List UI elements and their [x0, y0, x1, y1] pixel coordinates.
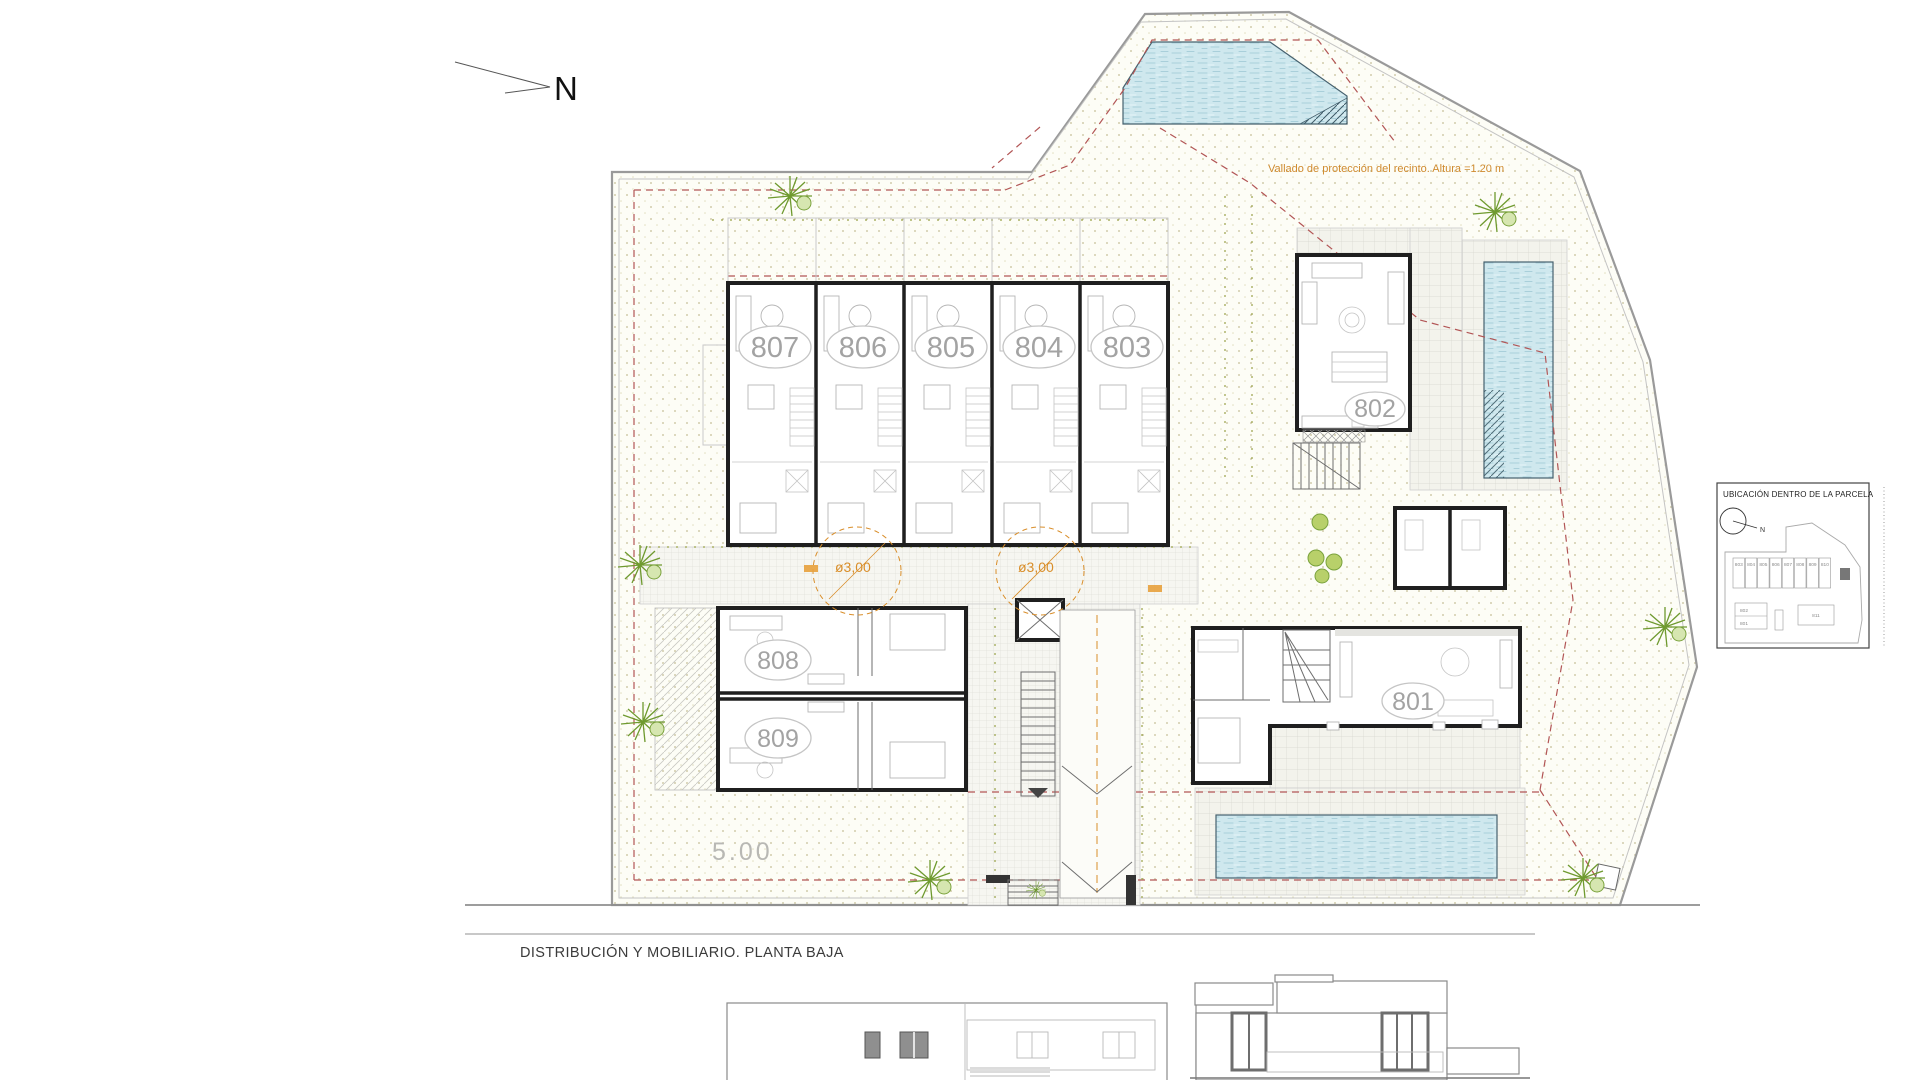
- window: [865, 1032, 880, 1058]
- unit-805-label: 805: [927, 332, 975, 364]
- site-plan-drawing: 807 806: [0, 0, 1920, 1080]
- unit-809-label: 809: [757, 725, 799, 753]
- inset-unit: 810: [1821, 562, 1829, 568]
- unit-801-label: 801: [1392, 688, 1434, 716]
- setback-dimension: 5.00: [712, 838, 773, 866]
- inset-title: UBICACIÓN DENTRO DE LA PARCELA: [1723, 490, 1874, 499]
- elevation-left: [727, 1003, 1167, 1080]
- ramp: [1060, 610, 1135, 898]
- central-path: [640, 547, 1198, 604]
- inset-unit: 809: [1809, 562, 1817, 568]
- street-lines: [465, 905, 1700, 934]
- elevation-right: [1190, 975, 1530, 1080]
- glass-door: [1382, 1013, 1428, 1070]
- north-label: N: [554, 70, 578, 107]
- inset-unit: 803: [1735, 562, 1743, 568]
- location-inset: UBICACIÓN DENTRO DE LA PARCELA N 803 804…: [1717, 483, 1874, 648]
- porch-808-809: [655, 608, 718, 790]
- unit-804-label: 804: [1015, 332, 1063, 364]
- duplex-808-809: 808 809: [718, 608, 966, 790]
- unit-806-label: 806: [839, 332, 887, 364]
- fence-note: Vallado de protección del recinto. Altur…: [1268, 163, 1504, 175]
- turning-circle-dim-2: ø3,00: [1018, 559, 1054, 575]
- north-arrow: N: [455, 62, 578, 107]
- inset-unit: 807: [1784, 562, 1792, 568]
- pool-801: [1216, 815, 1497, 878]
- unit-802-label: 802: [1354, 395, 1396, 423]
- unit-808-label: 808: [757, 647, 799, 675]
- inset-unit: 801: [1740, 621, 1748, 627]
- pool-802-steps: [1484, 390, 1504, 478]
- utility-block: [1395, 508, 1505, 588]
- turning-circle-dim-1: ø3,00: [835, 559, 871, 575]
- unit-807-label: 807: [751, 332, 799, 364]
- inset-unit: 805: [1759, 562, 1767, 568]
- unit-803-label: 803: [1103, 332, 1151, 364]
- inset-unit: 811: [1812, 613, 1820, 619]
- inset-unit: 802: [1740, 608, 1748, 614]
- inset-north-label: N: [1760, 527, 1765, 534]
- inset-unit: 806: [1772, 562, 1780, 568]
- inset-unit: 804: [1747, 562, 1755, 568]
- drawing-title: DISTRIBUCIÓN Y MOBILIARIO. PLANTA BAJA: [520, 944, 844, 961]
- inset-unit: 808: [1796, 562, 1804, 568]
